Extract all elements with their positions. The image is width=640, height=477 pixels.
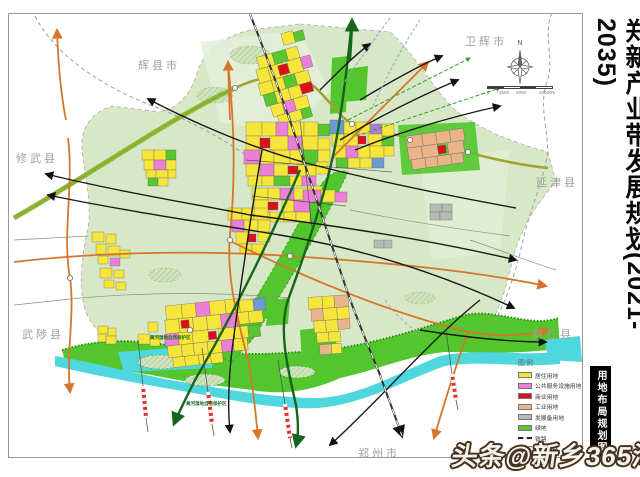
legend-label-3: 工业用地 (535, 402, 558, 411)
legend-swatch-0 (518, 372, 532, 378)
title-sidebar: 郑新产业带发展规划(2021-2035) 用地布局规划图 (582, 13, 626, 458)
map-area: 辉县市卫辉市修武县延津县武陟县封丘县郑州市黄河湿地自然保护区黄河湿地自然保护区 (8, 13, 582, 458)
legend-item-3: 工业用地 (518, 402, 582, 413)
scale-bar: 02500500010000m (487, 86, 557, 100)
legend-label-2: 商业用地 (535, 392, 558, 401)
legend-item-1: 公共服务设施用地 (518, 381, 582, 392)
planning-map-poster: 辉县市卫辉市修武县延津县武陟县封丘县郑州市黄河湿地自然保护区黄河湿地自然保护区 … (0, 0, 640, 477)
legend-label-4: 发展备用地 (535, 413, 564, 422)
legend-item-2: 商业用地 (518, 391, 582, 402)
scale-label-2: 5000 (516, 90, 526, 95)
scale-bar-labels: 02500500010000m (487, 89, 557, 97)
legend-swatch-3 (518, 404, 532, 410)
compass-icon: N (505, 40, 535, 88)
scale-label-0: 0 (487, 90, 490, 95)
scale-label-1: 2500 (499, 90, 509, 95)
legend-label-5: 绿地 (535, 423, 547, 432)
compass-north-label: N (505, 40, 535, 48)
legend-swatch-1 (518, 383, 532, 389)
legend-item-5: 绿地 (518, 423, 582, 434)
legend-item-0: 居住用地 (518, 370, 582, 381)
watermark-text: 头条@新乡365淘房 (449, 436, 640, 473)
legend-title: 图例 (518, 358, 582, 368)
legend-label-1: 公共服务设施用地 (535, 381, 581, 390)
legend-label-0: 居住用地 (535, 371, 558, 380)
legend-item-4: 发展备用地 (518, 412, 582, 423)
poster-title: 郑新产业带发展规划(2021-2035) (591, 18, 640, 378)
legend-swatch-5 (518, 425, 532, 431)
legend-swatch-4 (518, 414, 532, 420)
scale-label-3: 10000m (539, 90, 555, 95)
map-canvas (8, 13, 582, 458)
legend-swatch-2 (518, 393, 532, 399)
